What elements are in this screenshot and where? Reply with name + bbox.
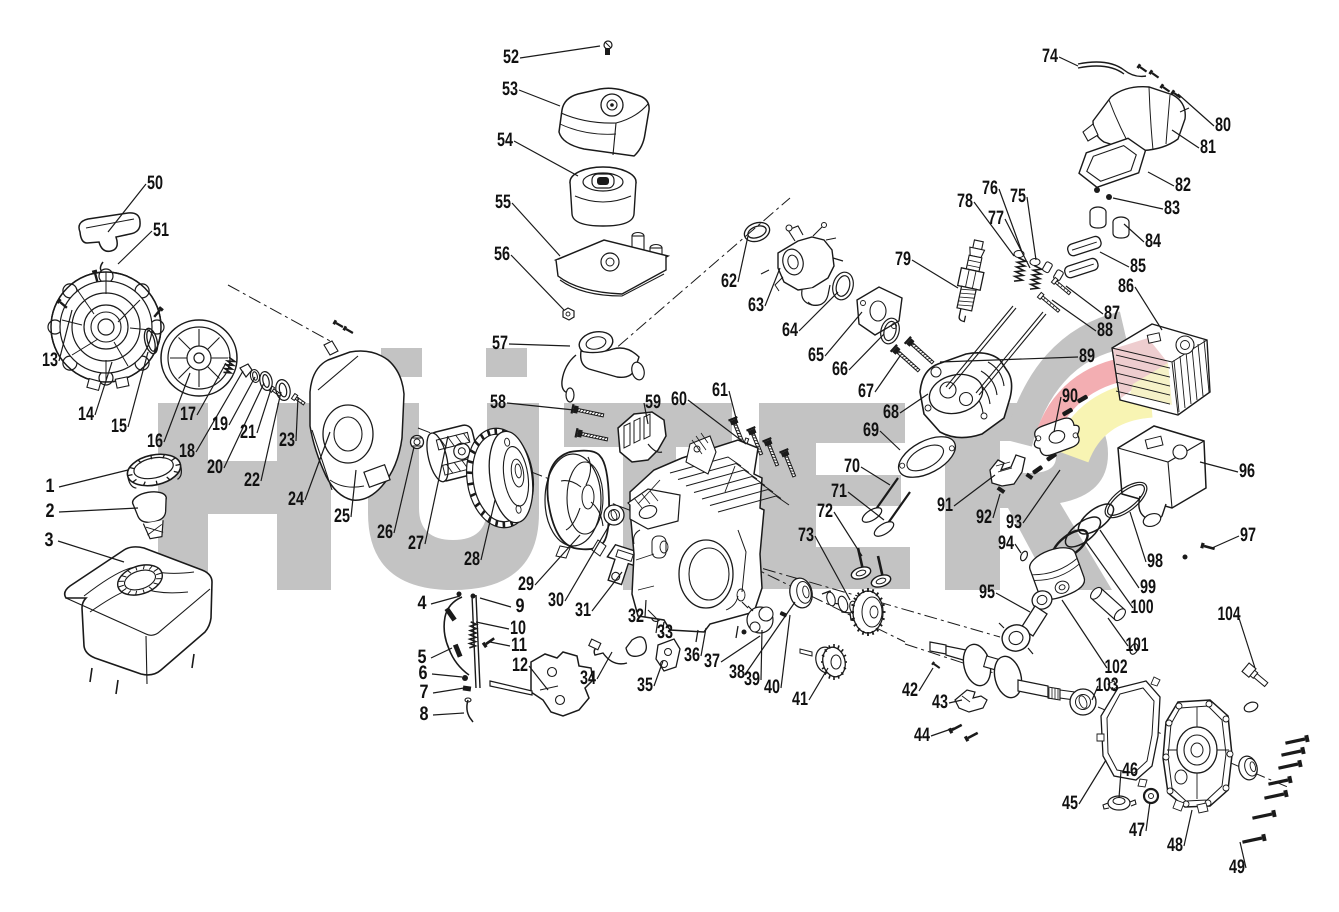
svg-text:2: 2 <box>45 500 54 522</box>
svg-text:65: 65 <box>808 344 824 366</box>
svg-text:18: 18 <box>179 440 195 462</box>
svg-text:69: 69 <box>863 419 879 441</box>
svg-text:14: 14 <box>78 403 94 425</box>
svg-text:11: 11 <box>511 634 527 656</box>
svg-text:91: 91 <box>937 494 953 516</box>
svg-text:31: 31 <box>575 599 591 621</box>
svg-text:7: 7 <box>419 681 428 703</box>
svg-text:41: 41 <box>792 688 808 710</box>
svg-text:12: 12 <box>512 654 528 676</box>
svg-text:77: 77 <box>988 207 1004 229</box>
svg-text:66: 66 <box>832 358 848 380</box>
svg-text:80: 80 <box>1215 114 1231 136</box>
svg-text:84: 84 <box>1145 230 1161 252</box>
svg-text:83: 83 <box>1164 197 1180 219</box>
svg-text:93: 93 <box>1006 511 1022 533</box>
svg-text:85: 85 <box>1130 255 1146 277</box>
svg-text:25: 25 <box>334 505 350 527</box>
svg-text:56: 56 <box>494 243 510 265</box>
svg-text:57: 57 <box>492 332 508 354</box>
svg-text:59: 59 <box>645 391 661 413</box>
svg-text:13: 13 <box>42 349 58 371</box>
svg-text:39: 39 <box>744 668 760 690</box>
svg-text:97: 97 <box>1240 524 1256 546</box>
svg-text:90: 90 <box>1062 385 1078 407</box>
svg-text:55: 55 <box>495 191 511 213</box>
svg-text:50: 50 <box>147 172 163 194</box>
svg-text:92: 92 <box>976 506 992 528</box>
svg-text:40: 40 <box>764 676 780 698</box>
svg-text:28: 28 <box>464 548 480 570</box>
svg-text:35: 35 <box>637 674 653 696</box>
svg-text:29: 29 <box>518 573 534 595</box>
svg-text:76: 76 <box>982 177 998 199</box>
svg-text:54: 54 <box>497 129 513 151</box>
svg-text:68: 68 <box>883 401 899 423</box>
svg-text:46: 46 <box>1122 759 1138 781</box>
svg-text:53: 53 <box>502 78 518 100</box>
svg-text:94: 94 <box>998 532 1014 554</box>
svg-text:100: 100 <box>1130 596 1153 618</box>
svg-text:63: 63 <box>748 294 764 316</box>
svg-text:23: 23 <box>279 429 295 451</box>
svg-text:86: 86 <box>1118 275 1134 297</box>
svg-text:78: 78 <box>957 190 973 212</box>
svg-text:9: 9 <box>515 595 524 617</box>
svg-text:70: 70 <box>844 455 860 477</box>
svg-text:16: 16 <box>147 430 163 452</box>
svg-text:81: 81 <box>1200 136 1216 158</box>
svg-text:60: 60 <box>671 388 687 410</box>
svg-text:61: 61 <box>712 379 728 401</box>
svg-text:62: 62 <box>721 270 737 292</box>
svg-text:89: 89 <box>1079 345 1095 367</box>
svg-text:24: 24 <box>288 488 304 510</box>
svg-text:101: 101 <box>1125 634 1148 656</box>
svg-text:43: 43 <box>932 691 948 713</box>
svg-text:88: 88 <box>1097 319 1113 341</box>
svg-text:45: 45 <box>1062 792 1078 814</box>
svg-text:64: 64 <box>782 319 798 341</box>
svg-text:51: 51 <box>153 219 169 241</box>
svg-text:74: 74 <box>1042 45 1058 67</box>
svg-text:103: 103 <box>1095 674 1118 696</box>
svg-text:42: 42 <box>902 679 918 701</box>
svg-text:36: 36 <box>684 644 700 666</box>
svg-text:96: 96 <box>1239 460 1255 482</box>
svg-text:82: 82 <box>1175 174 1191 196</box>
svg-text:3: 3 <box>44 529 53 551</box>
svg-text:1: 1 <box>45 475 54 497</box>
svg-text:71: 71 <box>831 480 847 502</box>
svg-text:21: 21 <box>240 421 256 443</box>
svg-text:52: 52 <box>503 46 519 68</box>
svg-text:22: 22 <box>244 469 260 491</box>
svg-text:4: 4 <box>417 592 426 614</box>
svg-text:73: 73 <box>798 524 814 546</box>
svg-text:48: 48 <box>1167 834 1183 856</box>
svg-text:8: 8 <box>419 703 428 725</box>
svg-text:33: 33 <box>657 621 673 643</box>
svg-text:27: 27 <box>408 532 424 554</box>
svg-text:67: 67 <box>858 380 874 402</box>
svg-text:15: 15 <box>111 415 127 437</box>
svg-text:30: 30 <box>548 589 564 611</box>
svg-text:79: 79 <box>895 248 911 270</box>
svg-text:19: 19 <box>212 413 228 435</box>
svg-text:37: 37 <box>704 650 720 672</box>
svg-text:44: 44 <box>914 724 930 746</box>
svg-text:95: 95 <box>979 581 995 603</box>
svg-text:38: 38 <box>729 661 745 683</box>
svg-text:26: 26 <box>377 521 393 543</box>
svg-text:34: 34 <box>580 667 596 689</box>
svg-text:17: 17 <box>180 403 196 425</box>
svg-text:49: 49 <box>1229 856 1245 878</box>
svg-text:20: 20 <box>207 456 223 478</box>
svg-text:47: 47 <box>1129 819 1145 841</box>
svg-text:58: 58 <box>490 391 506 413</box>
svg-text:32: 32 <box>628 605 644 627</box>
svg-text:72: 72 <box>817 500 833 522</box>
svg-text:104: 104 <box>1217 603 1240 625</box>
svg-text:75: 75 <box>1010 185 1026 207</box>
svg-text:98: 98 <box>1147 550 1163 572</box>
svg-text:99: 99 <box>1140 576 1156 598</box>
